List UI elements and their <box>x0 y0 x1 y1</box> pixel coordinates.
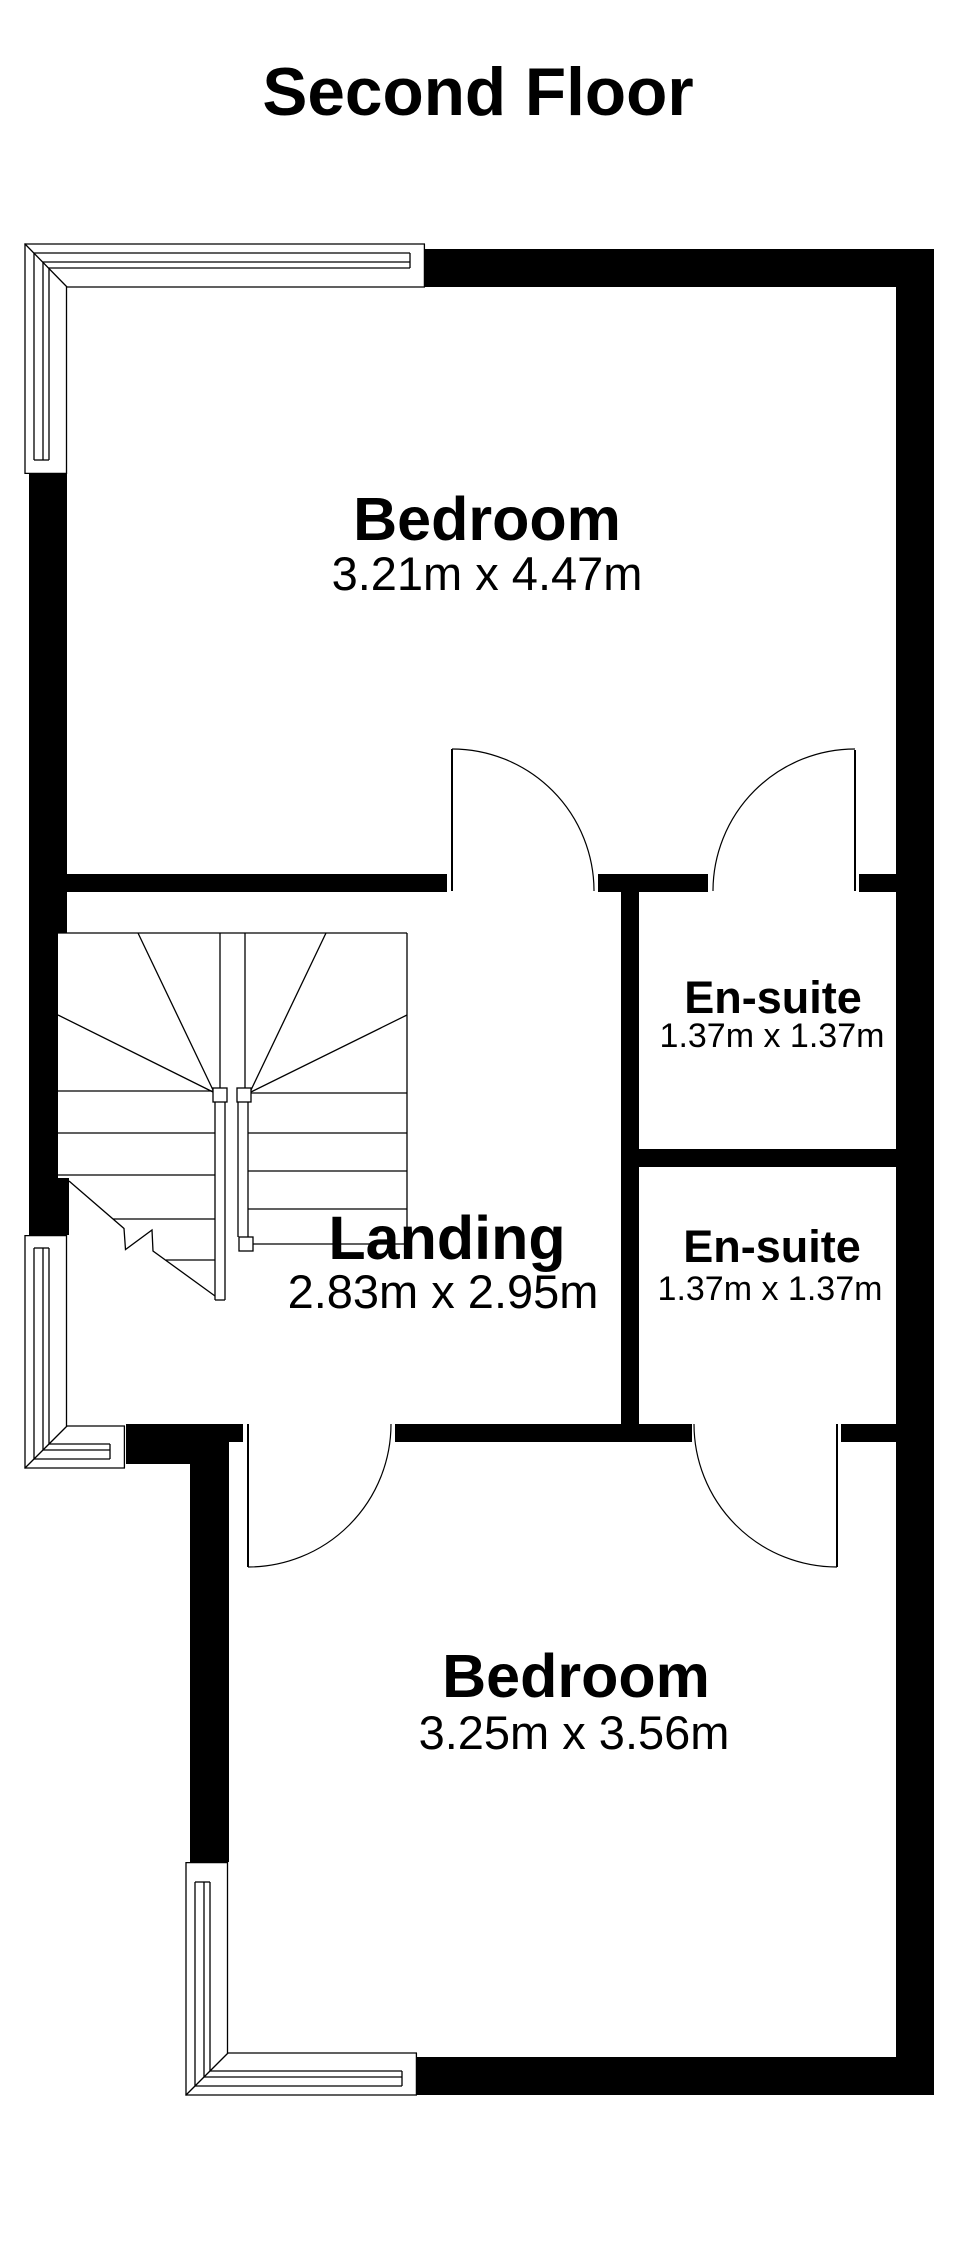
svg-text:Bedroom: Bedroom <box>353 485 621 553</box>
svg-text:1.37m x 1.37m: 1.37m x 1.37m <box>658 1270 883 1308</box>
svg-text:3.25m x 3.56m: 3.25m x 3.56m <box>419 1706 730 1759</box>
svg-text:En-suite: En-suite <box>683 1221 861 1272</box>
svg-text:2.83m x 2.95m: 2.83m x 2.95m <box>288 1265 599 1318</box>
svg-text:Second Floor: Second Floor <box>262 55 693 130</box>
svg-text:1.37m x 1.37m: 1.37m x 1.37m <box>660 1017 885 1055</box>
svg-text:Bedroom: Bedroom <box>442 1642 710 1710</box>
svg-text:Landing: Landing <box>328 1204 565 1272</box>
svg-text:En-suite: En-suite <box>684 972 862 1023</box>
svg-text:3.21m x 4.47m: 3.21m x 4.47m <box>332 547 643 600</box>
